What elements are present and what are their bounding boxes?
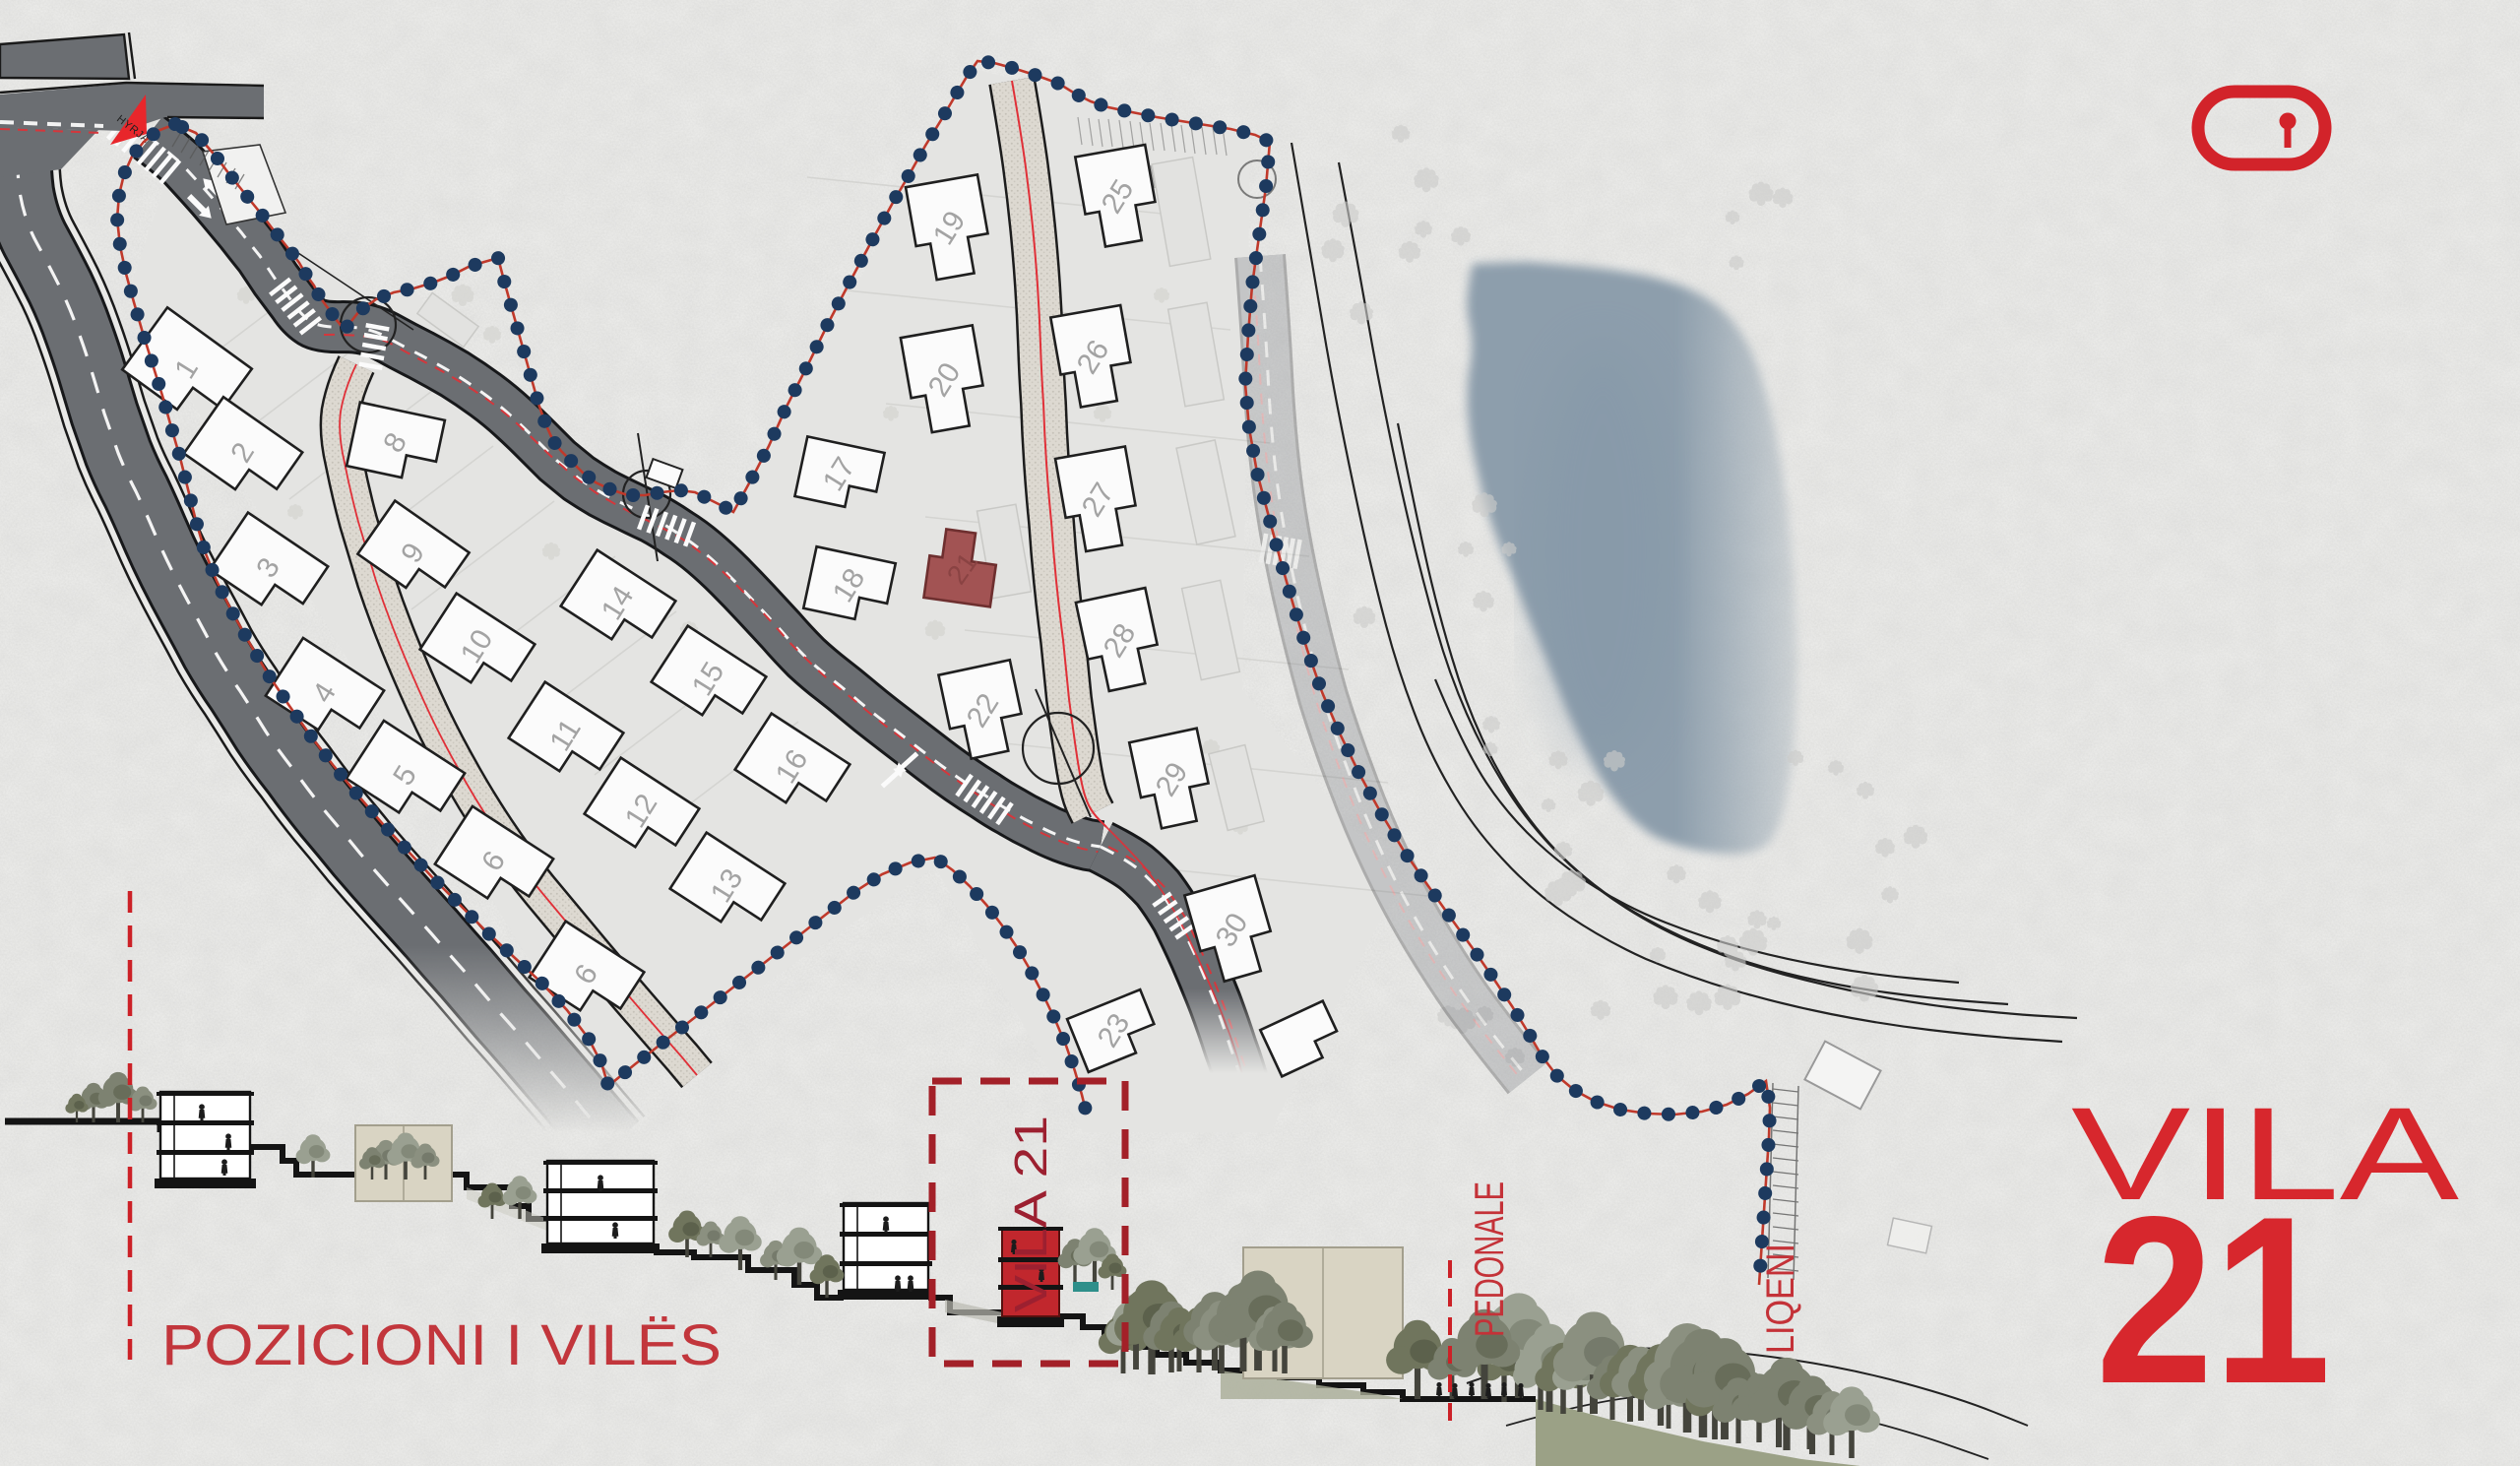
svg-text:LIQENI: LIQENI [1759, 1243, 1802, 1354]
svg-text:PEDONALE: PEDONALE [1466, 1181, 1512, 1337]
svg-text:POZICIONI I VILËS: POZICIONI I VILËS [161, 1313, 722, 1377]
svg-text:VILA 21: VILA 21 [1005, 1115, 1056, 1312]
svg-text:21: 21 [2096, 1168, 2331, 1434]
